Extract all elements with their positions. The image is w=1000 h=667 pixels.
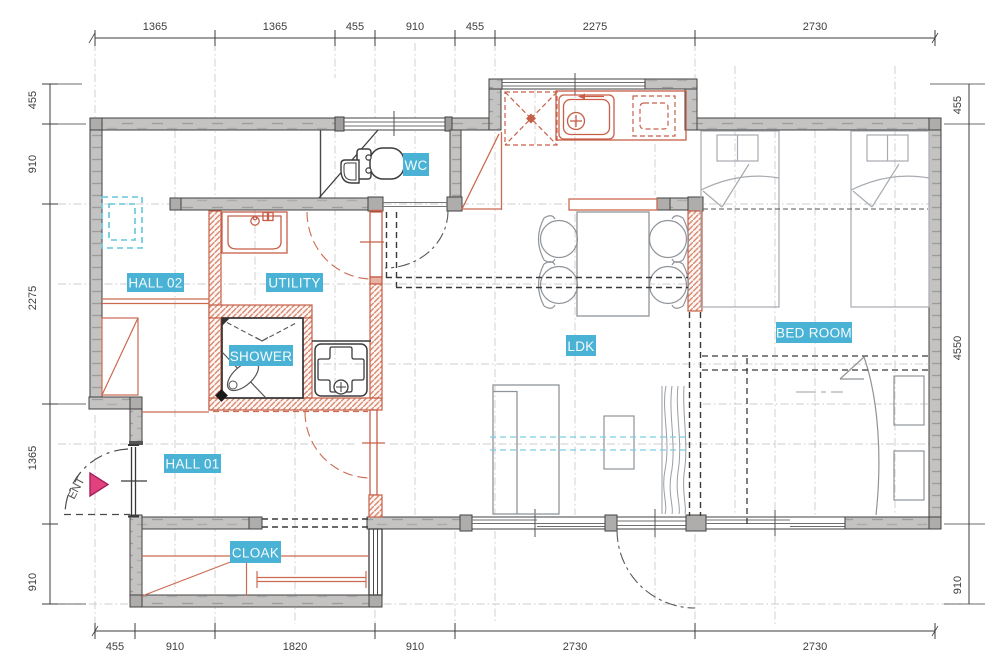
svg-text:HALL 02: HALL 02 <box>128 276 182 291</box>
svg-text:910: 910 <box>952 576 964 594</box>
svg-text:2730: 2730 <box>563 641 587 653</box>
svg-text:CLOAK: CLOAK <box>232 546 279 561</box>
svg-text:2275: 2275 <box>583 21 607 33</box>
svg-text:WC: WC <box>404 158 427 173</box>
svg-text:1365: 1365 <box>143 21 167 33</box>
svg-text:910: 910 <box>166 641 184 653</box>
svg-text:910: 910 <box>406 21 424 33</box>
svg-text:UTILITY: UTILITY <box>268 276 320 291</box>
svg-text:1820: 1820 <box>283 641 307 653</box>
svg-text:910: 910 <box>27 155 39 173</box>
svg-text:4550: 4550 <box>952 336 964 360</box>
svg-text:1365: 1365 <box>263 21 287 33</box>
svg-text:LDK: LDK <box>567 339 594 354</box>
svg-text:455: 455 <box>27 91 39 109</box>
svg-text:2730: 2730 <box>803 21 827 33</box>
svg-text:455: 455 <box>466 21 484 33</box>
svg-text:2275: 2275 <box>27 286 39 310</box>
svg-text:910: 910 <box>406 641 424 653</box>
svg-text:BED ROOM: BED ROOM <box>776 326 852 341</box>
svg-text:455: 455 <box>106 641 124 653</box>
svg-text:910: 910 <box>27 573 39 591</box>
svg-text:455: 455 <box>346 21 364 33</box>
svg-text:HALL 01: HALL 01 <box>165 457 219 472</box>
svg-text:2730: 2730 <box>803 641 827 653</box>
svg-text:SHOWER: SHOWER <box>230 349 293 364</box>
svg-text:455: 455 <box>952 96 964 114</box>
svg-text:1365: 1365 <box>27 446 39 470</box>
